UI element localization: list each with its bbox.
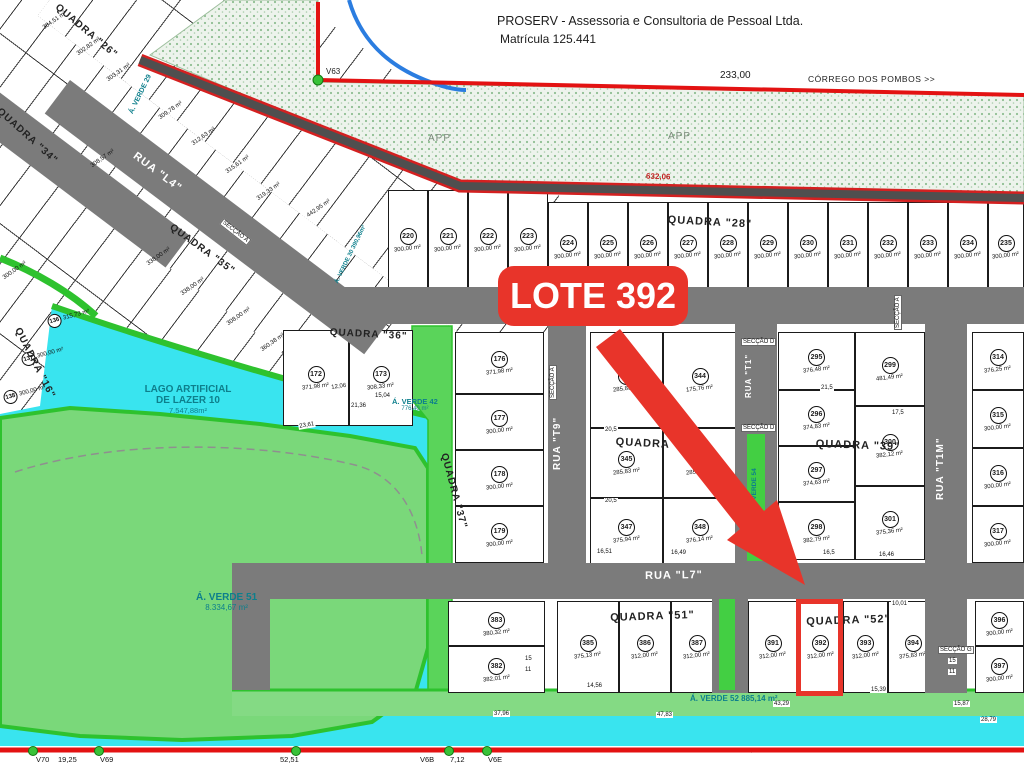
vertex-v63-dot (313, 75, 323, 85)
boundary-vertex-dot (28, 746, 38, 756)
subdivision-plat-map: PROSERV - Assessoria e Consultoria de Pe… (0, 0, 1024, 768)
boundary-measure-label: 19,25 (58, 755, 77, 764)
boundary-vertex-dot (444, 746, 454, 756)
lote-392-outline (796, 599, 843, 696)
boundary-vertex-dot (291, 746, 301, 756)
boundary-measure-label: V6B (420, 755, 434, 764)
boundary-measure-label: V69 (100, 755, 113, 764)
boundary-measure-label: V70 (36, 755, 49, 764)
overlay-layer (0, 0, 1024, 768)
boundary-red-line (318, 2, 1024, 95)
lote-392-badge: LOTE 392 (498, 266, 688, 326)
boundary-vertex-dot (94, 746, 104, 756)
road-red-edge (140, 60, 1024, 198)
boundary-vertex-dot (482, 746, 492, 756)
lote-392-arrow (596, 329, 805, 585)
road-surface (140, 60, 1024, 198)
boundary-measure-label: V6E (488, 755, 502, 764)
boundary-measure-label: 7,12 (450, 755, 465, 764)
boundary-measure-label: 52,51 (280, 755, 299, 764)
